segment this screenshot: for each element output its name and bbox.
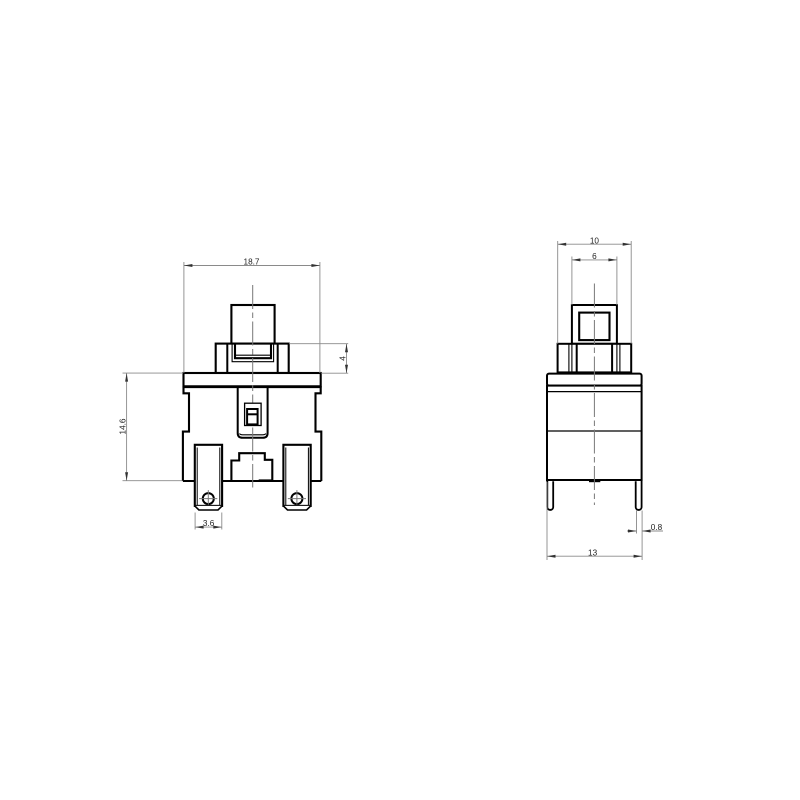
svg-text:6: 6 bbox=[592, 252, 597, 261]
svg-text:14.6: 14.6 bbox=[119, 418, 128, 434]
svg-text:4: 4 bbox=[338, 356, 347, 361]
svg-text:10: 10 bbox=[590, 236, 600, 245]
svg-text:18.7: 18.7 bbox=[244, 258, 260, 267]
svg-text:13: 13 bbox=[588, 548, 598, 557]
svg-text:3.6: 3.6 bbox=[203, 519, 215, 528]
svg-text:0.8: 0.8 bbox=[651, 523, 663, 532]
